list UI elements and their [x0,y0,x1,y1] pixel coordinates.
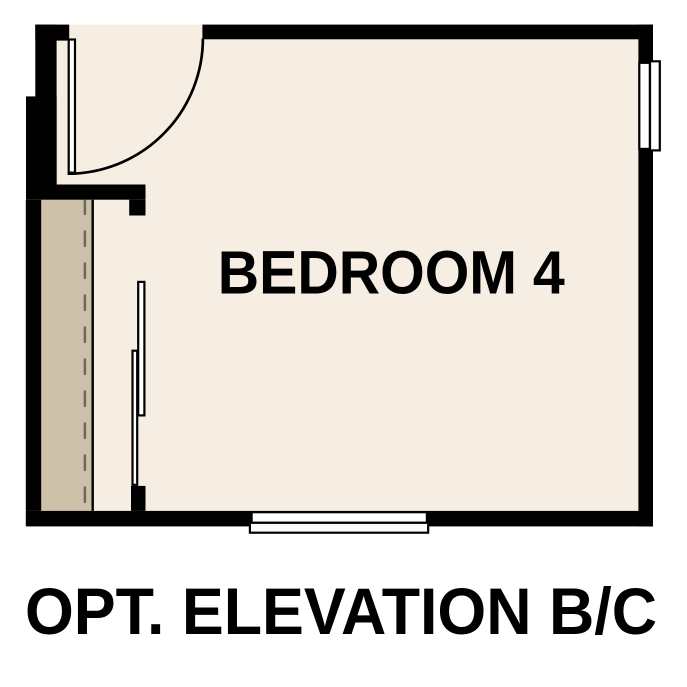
svg-text:BEDROOM 4: BEDROOM 4 [218,239,565,307]
svg-text:OPT. ELEVATION B/C: OPT. ELEVATION B/C [25,574,657,648]
